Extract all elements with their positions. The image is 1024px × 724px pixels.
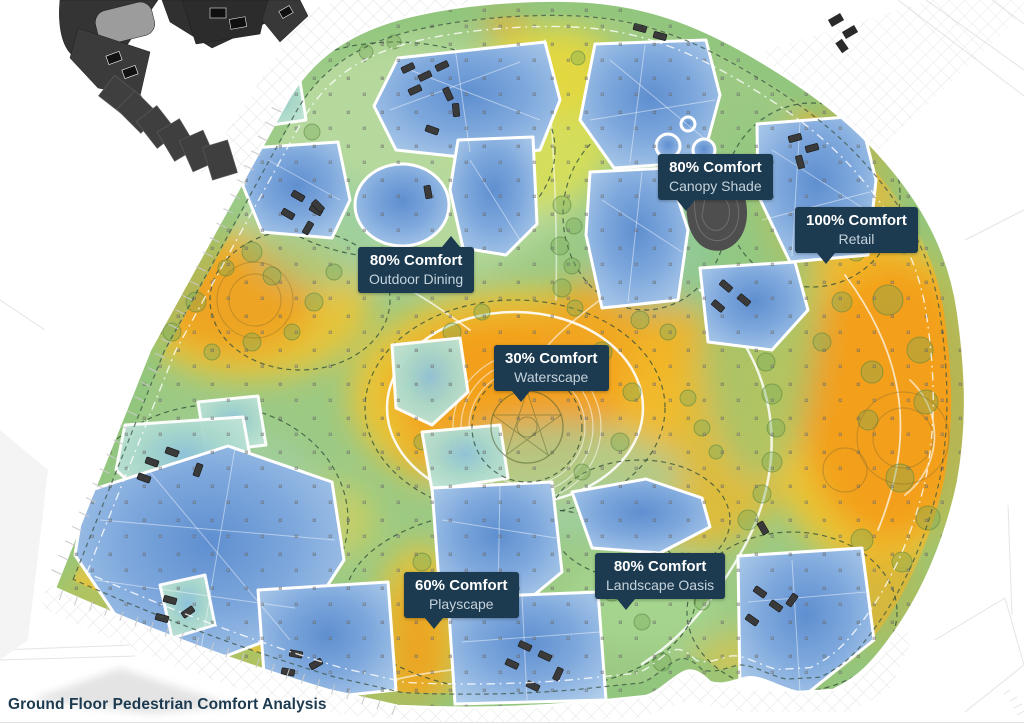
callout-box: 60% Comfort Playscape (404, 572, 519, 618)
comfort-percentage: 100% Comfort (806, 211, 907, 231)
callout-box: 100% Comfort Retail (795, 207, 918, 253)
callout-waterscape: 30% Comfort Waterscape (494, 345, 609, 391)
area-name: Canopy Shade (669, 178, 762, 194)
callout-box: 30% Comfort Waterscape (494, 345, 609, 391)
callout-pointer-icon (817, 253, 835, 264)
map-title: Ground Floor Pedestrian Comfort Analysis (8, 696, 327, 714)
callout-canopy-shade: 80% Comfort Canopy Shade (658, 154, 773, 200)
comfort-percentage: 60% Comfort (415, 576, 508, 596)
callout-pointer-icon (677, 200, 695, 211)
comfort-percentage: 80% Comfort (606, 557, 714, 577)
segmented-building-bar (99, 75, 238, 180)
pedestrian-comfort-analysis: Ground Floor Pedestrian Comfort Analysis… (0, 0, 1024, 724)
callout-pointer-icon (425, 618, 443, 629)
callout-outdoor-dining: 80% Comfort Outdoor Dining (358, 247, 474, 293)
callout-pointer-icon (512, 391, 530, 402)
area-name: Retail (806, 231, 907, 247)
area-name: Playscape (415, 596, 508, 612)
area-name: Waterscape (505, 369, 598, 385)
callout-playscape: 60% Comfort Playscape (404, 572, 519, 618)
callout-retail: 100% Comfort Retail (795, 207, 918, 253)
callout-box: 80% Comfort Landscape Oasis (595, 553, 725, 599)
callout-box: 80% Comfort Canopy Shade (658, 154, 773, 200)
comfort-percentage: 30% Comfort (505, 349, 598, 369)
callout-landscape-oasis: 80% Comfort Landscape Oasis (595, 553, 725, 599)
callout-pointer-icon (617, 599, 635, 610)
area-name: Outdoor Dining (369, 271, 463, 287)
comfort-percentage: 80% Comfort (369, 251, 463, 271)
comfort-percentage: 80% Comfort (669, 158, 762, 178)
callout-box: 80% Comfort Outdoor Dining (358, 247, 474, 293)
area-name: Landscape Oasis (606, 577, 714, 593)
callout-pointer-icon (442, 236, 460, 247)
